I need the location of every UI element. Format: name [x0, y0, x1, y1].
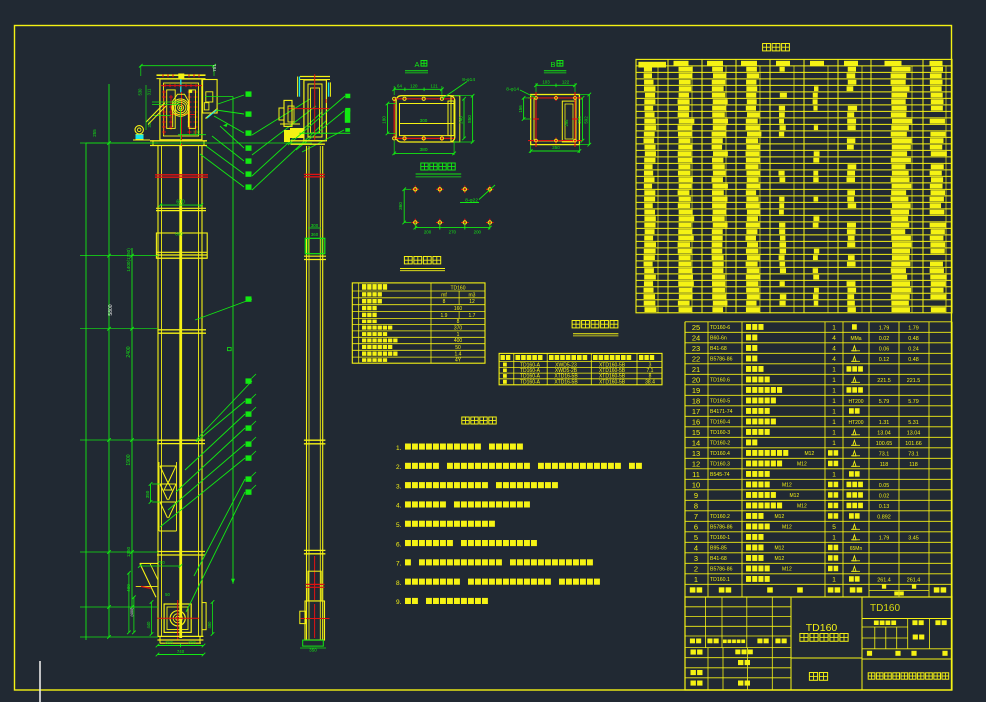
svg-text:23: 23: [692, 344, 700, 353]
svg-text:0.48: 0.48: [908, 336, 919, 342]
svg-text:118: 118: [909, 462, 918, 468]
svg-text:221.5: 221.5: [907, 378, 921, 384]
svg-text:310: 310: [165, 640, 173, 645]
svg-text:B: B: [550, 60, 555, 69]
svg-text:180: 180: [381, 116, 386, 124]
svg-text:751: 751: [212, 64, 217, 72]
svg-text:m3: m3: [469, 292, 476, 298]
svg-text:370: 370: [454, 325, 463, 331]
svg-text:TD160.6: TD160.6: [710, 378, 730, 384]
svg-text:261.4: 261.4: [907, 577, 921, 583]
svg-text:38.4: 38.4: [645, 380, 655, 386]
svg-text:24: 24: [692, 334, 700, 343]
svg-text:TD160.1: TD160.1: [710, 577, 730, 583]
svg-text:65Mn: 65Mn: [850, 546, 863, 552]
svg-text:14: 14: [692, 439, 700, 448]
svg-text:8: 8: [443, 299, 446, 305]
svg-text:50: 50: [165, 592, 170, 597]
svg-text:1: 1: [832, 472, 836, 479]
svg-text:B5786-86: B5786-86: [710, 525, 733, 531]
svg-text:7: 7: [694, 512, 698, 521]
svg-text:1: 1: [832, 388, 836, 395]
svg-text:350: 350: [552, 145, 560, 150]
svg-text:240: 240: [458, 116, 463, 124]
svg-text:9.: 9.: [396, 599, 402, 606]
svg-text:296: 296: [577, 116, 582, 124]
svg-text:7.: 7.: [396, 561, 402, 568]
svg-text:13.04: 13.04: [907, 430, 921, 436]
svg-text:0.06: 0.06: [879, 346, 890, 352]
svg-text:1350: 1350: [126, 546, 131, 557]
svg-text:1: 1: [832, 377, 836, 384]
svg-text:4.: 4.: [396, 503, 402, 510]
svg-text:0.05: 0.05: [879, 483, 890, 489]
svg-text:3.45: 3.45: [908, 535, 919, 541]
svg-text:1: 1: [832, 398, 836, 405]
svg-text:M12: M12: [782, 567, 792, 573]
svg-text:740: 740: [177, 649, 185, 654]
svg-text:8.: 8.: [396, 580, 402, 587]
svg-text:1.9: 1.9: [441, 313, 448, 319]
svg-text:6.: 6.: [396, 541, 402, 548]
svg-text:5: 5: [694, 533, 698, 542]
svg-text:8-φ14: 8-φ14: [506, 87, 519, 93]
svg-text:1: 1: [832, 409, 836, 416]
svg-text:1.79: 1.79: [879, 325, 890, 331]
svg-text:HT200: HT200: [848, 399, 863, 405]
svg-text:3: 3: [694, 554, 698, 563]
svg-text:2400: 2400: [126, 346, 132, 357]
svg-text:TD160-4: TD160-4: [710, 420, 730, 426]
svg-text:1: 1: [832, 430, 836, 437]
svg-text:18: 18: [692, 397, 700, 406]
svg-text:M12: M12: [775, 514, 785, 520]
svg-text:118: 118: [880, 462, 889, 468]
svg-text:8: 8: [457, 319, 460, 325]
svg-text:311: 311: [146, 88, 151, 95]
svg-text:1.: 1.: [396, 445, 402, 452]
svg-text:300: 300: [420, 118, 428, 123]
svg-text:101.66: 101.66: [905, 441, 922, 447]
svg-text:5.: 5.: [396, 522, 402, 529]
svg-text:156: 156: [518, 105, 523, 113]
svg-text:3.: 3.: [396, 483, 402, 490]
svg-text:2: 2: [694, 565, 698, 574]
svg-text:12: 12: [692, 460, 700, 469]
svg-text:5.79: 5.79: [879, 399, 890, 405]
svg-text:TD160: TD160: [870, 603, 900, 614]
svg-text:310: 310: [188, 640, 196, 645]
svg-text:13.04: 13.04: [877, 430, 891, 436]
svg-text:HT200: HT200: [848, 420, 863, 426]
svg-text:1: 1: [832, 325, 836, 332]
svg-text:1.31: 1.31: [879, 420, 890, 426]
svg-text:120: 120: [410, 84, 418, 89]
svg-text:TD160-1: TD160-1: [710, 535, 730, 541]
svg-text:22: 22: [692, 355, 700, 364]
svg-text:255: 255: [92, 129, 97, 137]
svg-text:5800: 5800: [108, 304, 114, 315]
svg-text:M12: M12: [782, 483, 792, 489]
svg-text:M12: M12: [790, 493, 800, 499]
svg-text:350: 350: [145, 490, 150, 498]
svg-text:103: 103: [542, 80, 550, 85]
svg-text:4: 4: [694, 544, 698, 553]
svg-text:B5786-86: B5786-86: [710, 357, 733, 363]
svg-text:0.13: 0.13: [879, 504, 890, 510]
svg-text:21: 21: [692, 365, 700, 374]
svg-text:A: A: [414, 60, 419, 69]
svg-text:0.24: 0.24: [908, 346, 919, 352]
svg-text:5.79: 5.79: [908, 399, 919, 405]
svg-text:121: 121: [431, 84, 439, 89]
svg-text:M12: M12: [797, 462, 807, 468]
svg-text:1: 1: [457, 332, 460, 338]
svg-text:400: 400: [454, 338, 463, 344]
svg-text:8: 8: [694, 502, 698, 511]
svg-text:XTD160-5B: XTD160-5B: [599, 380, 626, 386]
svg-text:73.1: 73.1: [908, 451, 919, 457]
svg-text:200: 200: [474, 230, 482, 235]
svg-text:160: 160: [193, 130, 201, 135]
svg-text:1900: 1900: [126, 454, 132, 465]
svg-text:1: 1: [832, 577, 836, 584]
svg-text:12: 12: [469, 299, 475, 305]
svg-text:17: 17: [692, 407, 700, 416]
svg-text:592: 592: [584, 116, 589, 124]
svg-text:TD160: TD160: [450, 286, 465, 292]
svg-text:200: 200: [424, 230, 432, 235]
svg-text:M12: M12: [782, 525, 792, 531]
svg-text:50: 50: [455, 345, 461, 351]
svg-text:1.79: 1.79: [908, 325, 919, 331]
svg-text:1: 1: [694, 575, 698, 584]
svg-text:440: 440: [146, 621, 151, 629]
svg-text:16: 16: [692, 418, 700, 427]
svg-text:B41-68: B41-68: [710, 346, 727, 352]
svg-text:4: 4: [832, 356, 836, 363]
svg-text:221.5: 221.5: [877, 378, 891, 384]
svg-text:360: 360: [398, 202, 403, 210]
svg-text:B4171-74: B4171-74: [710, 409, 733, 415]
svg-text:0.02: 0.02: [879, 493, 890, 499]
svg-text:M12: M12: [797, 504, 807, 510]
svg-text:360: 360: [311, 232, 319, 237]
svg-text:530: 530: [138, 88, 143, 96]
svg-text:300: 300: [311, 223, 319, 228]
svg-text:850: 850: [467, 115, 472, 123]
svg-text:15: 15: [692, 428, 700, 437]
svg-text:B5786-86: B5786-86: [710, 567, 733, 573]
svg-text:B41-68: B41-68: [710, 556, 727, 562]
svg-text:100.65: 100.65: [876, 441, 893, 447]
svg-text:(400): (400): [130, 607, 134, 617]
svg-text:122: 122: [562, 80, 570, 85]
svg-text:1.4: 1.4: [455, 352, 462, 358]
svg-text:380: 380: [419, 147, 427, 153]
svg-text:B545-74: B545-74: [710, 472, 730, 478]
svg-text:TD160-3: TD160-3: [710, 430, 730, 436]
svg-text:TD160-2: TD160-2: [710, 441, 730, 447]
svg-text:0.12: 0.12: [879, 357, 890, 363]
svg-text:1: 1: [832, 440, 836, 447]
svg-text:8-φ14: 8-φ14: [462, 77, 475, 83]
svg-text:5: 5: [832, 524, 836, 531]
svg-text:1.7: 1.7: [469, 313, 476, 319]
svg-text:TD160.2: TD160.2: [710, 514, 730, 520]
svg-text:TD160: TD160: [806, 622, 838, 634]
svg-text:295: 295: [564, 119, 569, 127]
svg-text:160: 160: [454, 306, 463, 312]
svg-text:M12: M12: [775, 546, 785, 552]
svg-text:1: 1: [832, 535, 836, 542]
svg-text:TD160.4: TD160.4: [710, 451, 730, 457]
svg-text:1400(1750): 1400(1750): [126, 248, 131, 272]
svg-text:1.79: 1.79: [879, 535, 890, 541]
svg-text:20: 20: [692, 376, 700, 385]
svg-text:11: 11: [692, 470, 700, 479]
svg-text:B60-6n: B60-6n: [710, 336, 727, 342]
svg-text:270: 270: [449, 230, 457, 235]
svg-text:64: 64: [397, 84, 402, 89]
svg-text:19: 19: [692, 386, 700, 395]
svg-text:0.02: 0.02: [879, 336, 890, 342]
svg-text:2.: 2.: [396, 464, 402, 471]
svg-text:700: 700: [157, 560, 165, 565]
svg-text:0.48: 0.48: [908, 357, 919, 363]
svg-text:450: 450: [207, 621, 212, 629]
svg-text:M12: M12: [775, 556, 785, 562]
svg-text:73.1: 73.1: [879, 451, 890, 457]
svg-text:4Y: 4Y: [455, 358, 462, 364]
svg-text:13: 13: [692, 449, 700, 458]
svg-text:10: 10: [692, 481, 700, 490]
svg-text:25: 25: [692, 323, 700, 332]
svg-text:1: 1: [832, 419, 836, 426]
svg-text:9: 9: [694, 491, 698, 500]
svg-text:600: 600: [175, 232, 183, 237]
svg-text:B95-85: B95-85: [710, 546, 727, 552]
svg-text:0.892: 0.892: [877, 514, 891, 520]
svg-text:TD160.3: TD160.3: [710, 462, 730, 468]
svg-text:mf: mf: [441, 292, 447, 298]
svg-text:261.4: 261.4: [877, 577, 891, 583]
svg-text:M12: M12: [805, 451, 815, 457]
svg-text:6: 6: [694, 523, 698, 532]
svg-text:MMa: MMa: [850, 336, 861, 342]
svg-text:XTD16-5B: XTD16-5B: [554, 380, 578, 386]
svg-text:4: 4: [832, 335, 836, 342]
svg-text:5.31: 5.31: [908, 420, 919, 426]
svg-text:600: 600: [176, 200, 185, 206]
svg-text:TD160-6: TD160-6: [710, 325, 730, 331]
svg-text:TD160-5: TD160-5: [710, 399, 730, 405]
svg-text:4: 4: [832, 346, 836, 353]
svg-text:TD160-A: TD160-A: [520, 380, 541, 386]
svg-text:1: 1: [832, 367, 836, 374]
